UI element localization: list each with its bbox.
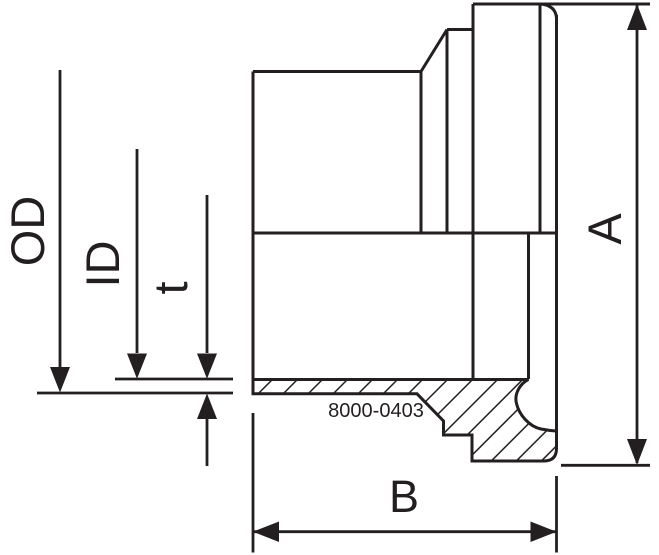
a-top-arrowhead: [627, 4, 647, 30]
dimension-a: A: [561, 4, 650, 465]
dimension-id: ID: [76, 149, 233, 379]
label-od: OD: [1, 196, 54, 267]
dimension-t: t: [144, 195, 217, 466]
label-b: B: [389, 471, 419, 522]
cone-edge: [421, 30, 447, 72]
od-arrowhead: [50, 367, 70, 393]
corner-radius: [540, 4, 557, 18]
label-id: ID: [76, 241, 129, 288]
b-left-arrowhead: [253, 522, 279, 543]
technical-drawing-canvas: OD ID t A: [0, 0, 659, 555]
label-a: A: [578, 213, 631, 245]
id-arrowhead: [127, 354, 147, 379]
ferrule-cross-section-drawing: OD ID t A: [0, 0, 659, 555]
a-bottom-arrowhead: [627, 439, 647, 465]
t-up-arrowhead: [197, 394, 217, 420]
b-right-arrowhead: [531, 522, 557, 543]
t-down-arrowhead: [197, 354, 217, 379]
part-number-label: 8000-0403: [328, 400, 424, 422]
label-t: t: [144, 281, 197, 294]
dimension-od: OD: [1, 70, 233, 393]
